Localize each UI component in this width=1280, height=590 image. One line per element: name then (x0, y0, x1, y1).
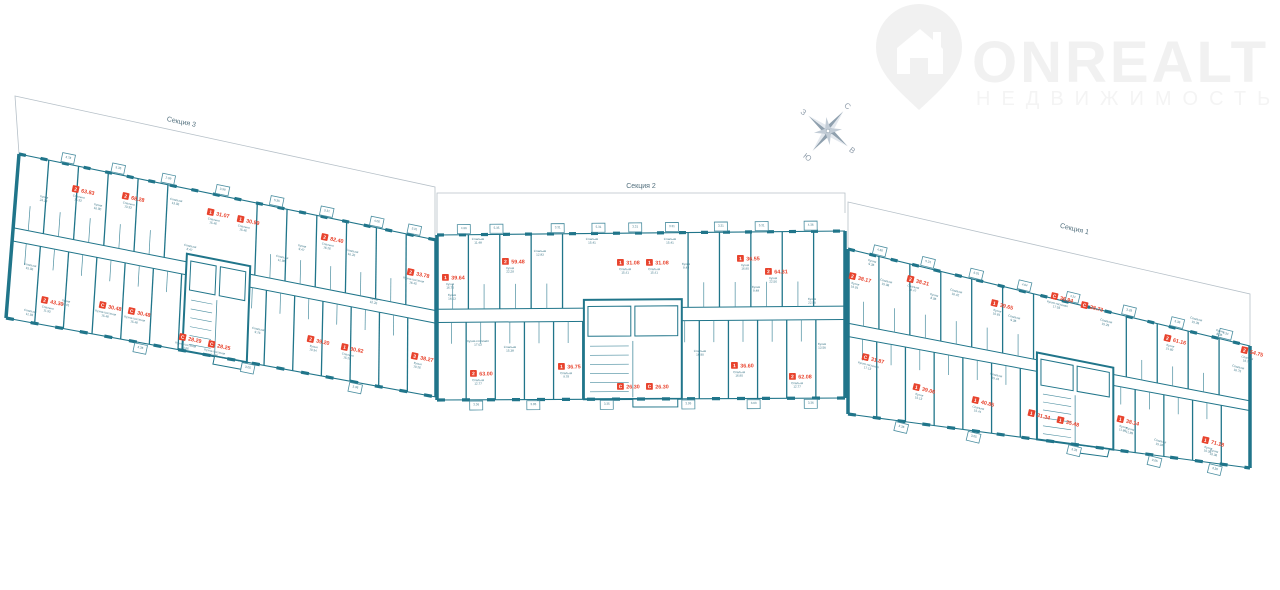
apartment-area: 39.64 (451, 275, 465, 281)
apartment-room-label: Кухня16.90 (741, 263, 749, 271)
apartment-label[interactable]: С26.30 (646, 383, 669, 391)
apartment-rooms-count: С (648, 384, 652, 390)
apartment-rooms-count: 1 (444, 275, 447, 281)
compass-rose: С В Ю З (778, 82, 876, 182)
apartment-label[interactable]: С26.30 (617, 383, 640, 391)
balcony-area-label: 3.31 (718, 224, 724, 228)
section-name-label: Секция 1 (1059, 223, 1089, 237)
apartment-rooms-count: 2 (791, 374, 794, 380)
section-name-label: Секция 2 (626, 183, 656, 190)
balcony-area-label: 3.03 (751, 401, 757, 405)
partition-wall (379, 312, 380, 386)
balcony-area-label: 3.31 (669, 224, 675, 228)
logo-brand-text: ONREALT (972, 30, 1269, 95)
apartment-area: 36.75 (567, 364, 581, 370)
room-area: 15.41 (666, 241, 674, 245)
room-label: Кухня22.56 (808, 297, 817, 305)
room-area: 22.28 (506, 270, 514, 274)
room-area: 15.39 (1191, 320, 1200, 326)
room-area: 9.78 (563, 375, 569, 379)
balcony-area-label: 3.31 (632, 224, 638, 228)
balcony-area-label: 3.36 (473, 402, 479, 406)
room-area: 14.66 (210, 352, 218, 358)
room-area: 16.13 (448, 297, 456, 301)
balcony-area-label: 5.35 (494, 226, 500, 230)
room-area: 15.41 (588, 241, 596, 245)
compass-west-label: З (799, 107, 808, 117)
room-area: 9.48 (683, 266, 689, 270)
room-area: 22.56 (769, 280, 777, 284)
section-name-label: Секция 3 (166, 116, 196, 129)
apartment-area: 62.08 (798, 374, 812, 380)
partition-wall (376, 228, 377, 299)
floor-plan-image: ONREALT НЕДВИЖИМОСТЬ С В Ю З 3.785.352.9… (0, 0, 1280, 590)
room-area: 16.73 (446, 286, 454, 290)
balcony-area-label: 4.96 (461, 226, 467, 230)
apartment-rooms-count: 1 (739, 256, 742, 262)
section-1: 4.365.316.014.044.213.295.364.343.363.05… (846, 202, 1264, 476)
room-area: 11.48 (474, 241, 482, 245)
room-area: 15.41 (650, 271, 658, 275)
balcony-area-label: 5.31 (759, 223, 765, 227)
apartment-rooms-count: 1 (648, 260, 651, 266)
apartment-room-label: Кухня22.56 (769, 276, 777, 284)
room-area: 17.03 (474, 343, 482, 347)
room-label: Спальня15.39 (1189, 316, 1203, 326)
apartment-rooms-count: 1 (560, 364, 563, 370)
room-area: 16.90 (735, 374, 743, 378)
apartment-area: 36.55 (746, 256, 760, 262)
balcony-area-label: 3.05 (685, 401, 691, 405)
onrealt-logo: ONREALT НЕДВИЖИМОСТЬ (876, 4, 1280, 110)
balcony-area-label: 4.36 (808, 223, 814, 227)
apartment-area: 36.60 (740, 363, 754, 369)
room-area: 13.56 (818, 346, 826, 350)
room-area: 12.77 (793, 385, 801, 389)
room-label: Кухня13.56 (818, 342, 827, 350)
building-sections: 3.785.352.993.995.353.314.063.313.363.05… (6, 96, 1264, 476)
section-3: 3.785.352.993.995.353.314.063.313.363.05… (6, 96, 436, 397)
room-area: 16.90 (741, 267, 749, 271)
room-area: 22.56 (808, 301, 816, 305)
room-label: Кухня16.13 (448, 293, 457, 301)
floor-plan-page: ONREALT НЕДВИЖИМОСТЬ С В Ю З 3.785.352.9… (0, 0, 1280, 590)
apartment-rooms-count: 2 (504, 259, 507, 265)
apartment-area: 26.30 (626, 384, 640, 390)
apartment-area: 59.48 (511, 259, 525, 265)
room-area: 15.41 (621, 271, 629, 275)
apartment-room-label: Кухня22.28 (506, 266, 514, 274)
balcony-area-label: 3.35 (604, 402, 610, 406)
balcony-area-label: 3.31 (555, 225, 561, 229)
apartment-area: 63.00 (479, 371, 493, 377)
apartment-rooms-count: С (619, 384, 623, 390)
balcony-area-label: 3.05 (530, 402, 536, 406)
apartment-room-label: Кухня16.73 (446, 282, 454, 290)
compass-east-label: В (847, 145, 857, 155)
apartment-area: 26.30 (655, 384, 669, 390)
apartment-rooms-count: 2 (472, 371, 475, 377)
stair-core (1037, 353, 1113, 450)
apartment-area: 31.08 (626, 260, 640, 266)
room-area: 16.90 (696, 353, 704, 357)
apartment-area: 31.08 (655, 260, 669, 266)
apartment-rooms-count: 1 (619, 260, 622, 266)
room-area: 15.38 (506, 349, 514, 353)
room-area: 12.77 (474, 382, 482, 386)
balcony-area-label: 5.31 (596, 225, 602, 229)
balcony-area-label: 3.36 (808, 401, 814, 405)
section-2: 4.965.353.315.313.313.313.315.314.363.36… (437, 183, 845, 410)
apartment-area: 64.31 (774, 269, 788, 275)
apartment-rooms-count: 1 (733, 363, 736, 369)
apartment-rooms-count: 2 (767, 269, 770, 275)
logo-sub-text: НЕДВИЖИМОСТЬ (976, 88, 1280, 110)
room-area: 12.83 (536, 253, 544, 257)
room-area: 9.48 (753, 289, 759, 293)
compass-north-label: С (842, 101, 852, 112)
compass-south-label: Ю (801, 151, 813, 163)
